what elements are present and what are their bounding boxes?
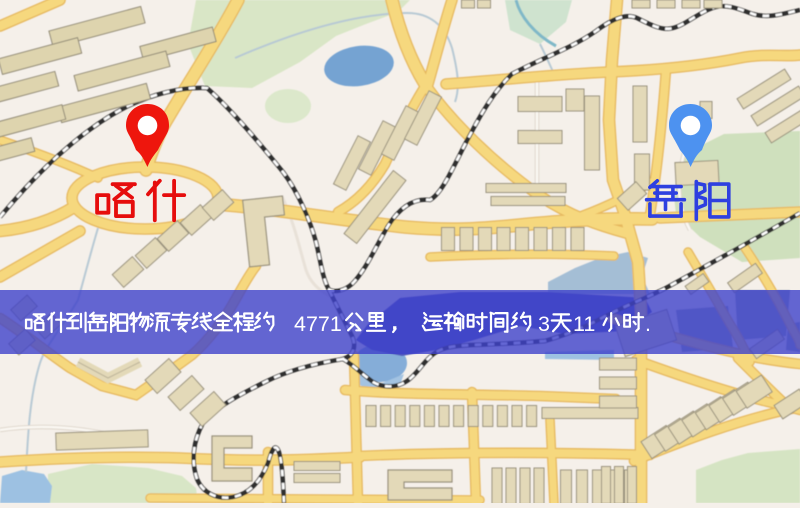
svg-text:.: . <box>645 312 651 336</box>
svg-text:11: 11 <box>573 312 595 336</box>
svg-text:3: 3 <box>538 312 550 336</box>
svg-text:4771: 4771 <box>294 312 342 336</box>
